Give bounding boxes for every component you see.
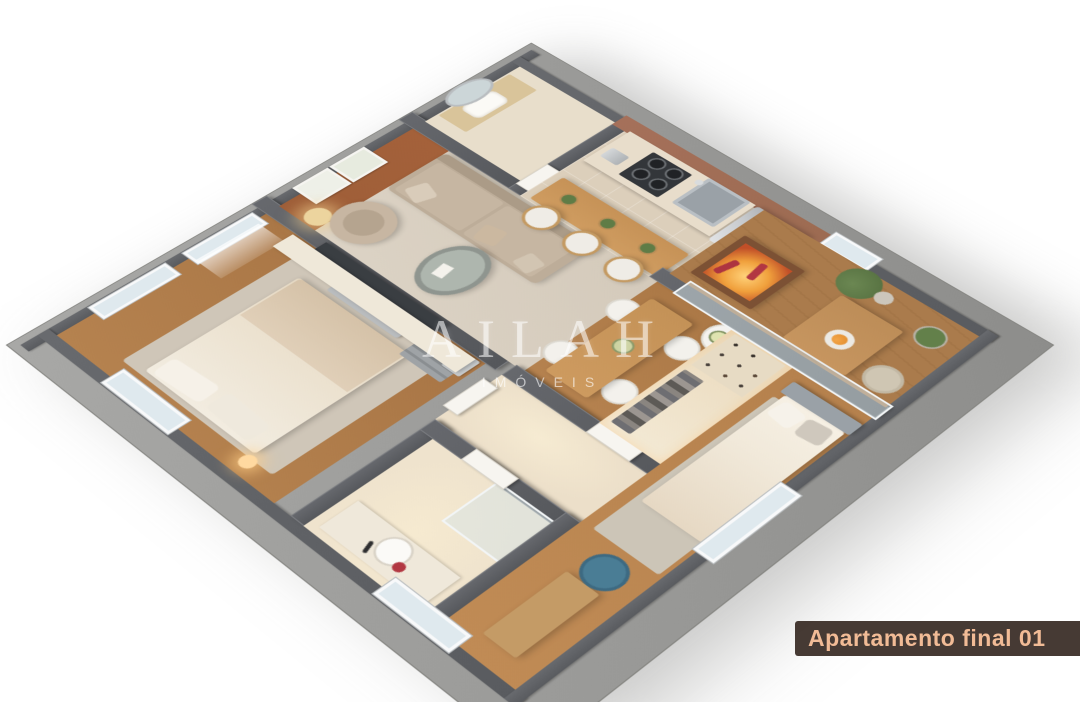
floorplan-render: AILAH IMÓVEIS Apartamento final 01 <box>0 0 1080 702</box>
unit-caption: Apartamento final 01 <box>795 621 1080 656</box>
unit-caption-text: Apartamento final 01 <box>808 625 1046 651</box>
apartment-isometric-plan <box>7 43 1052 702</box>
